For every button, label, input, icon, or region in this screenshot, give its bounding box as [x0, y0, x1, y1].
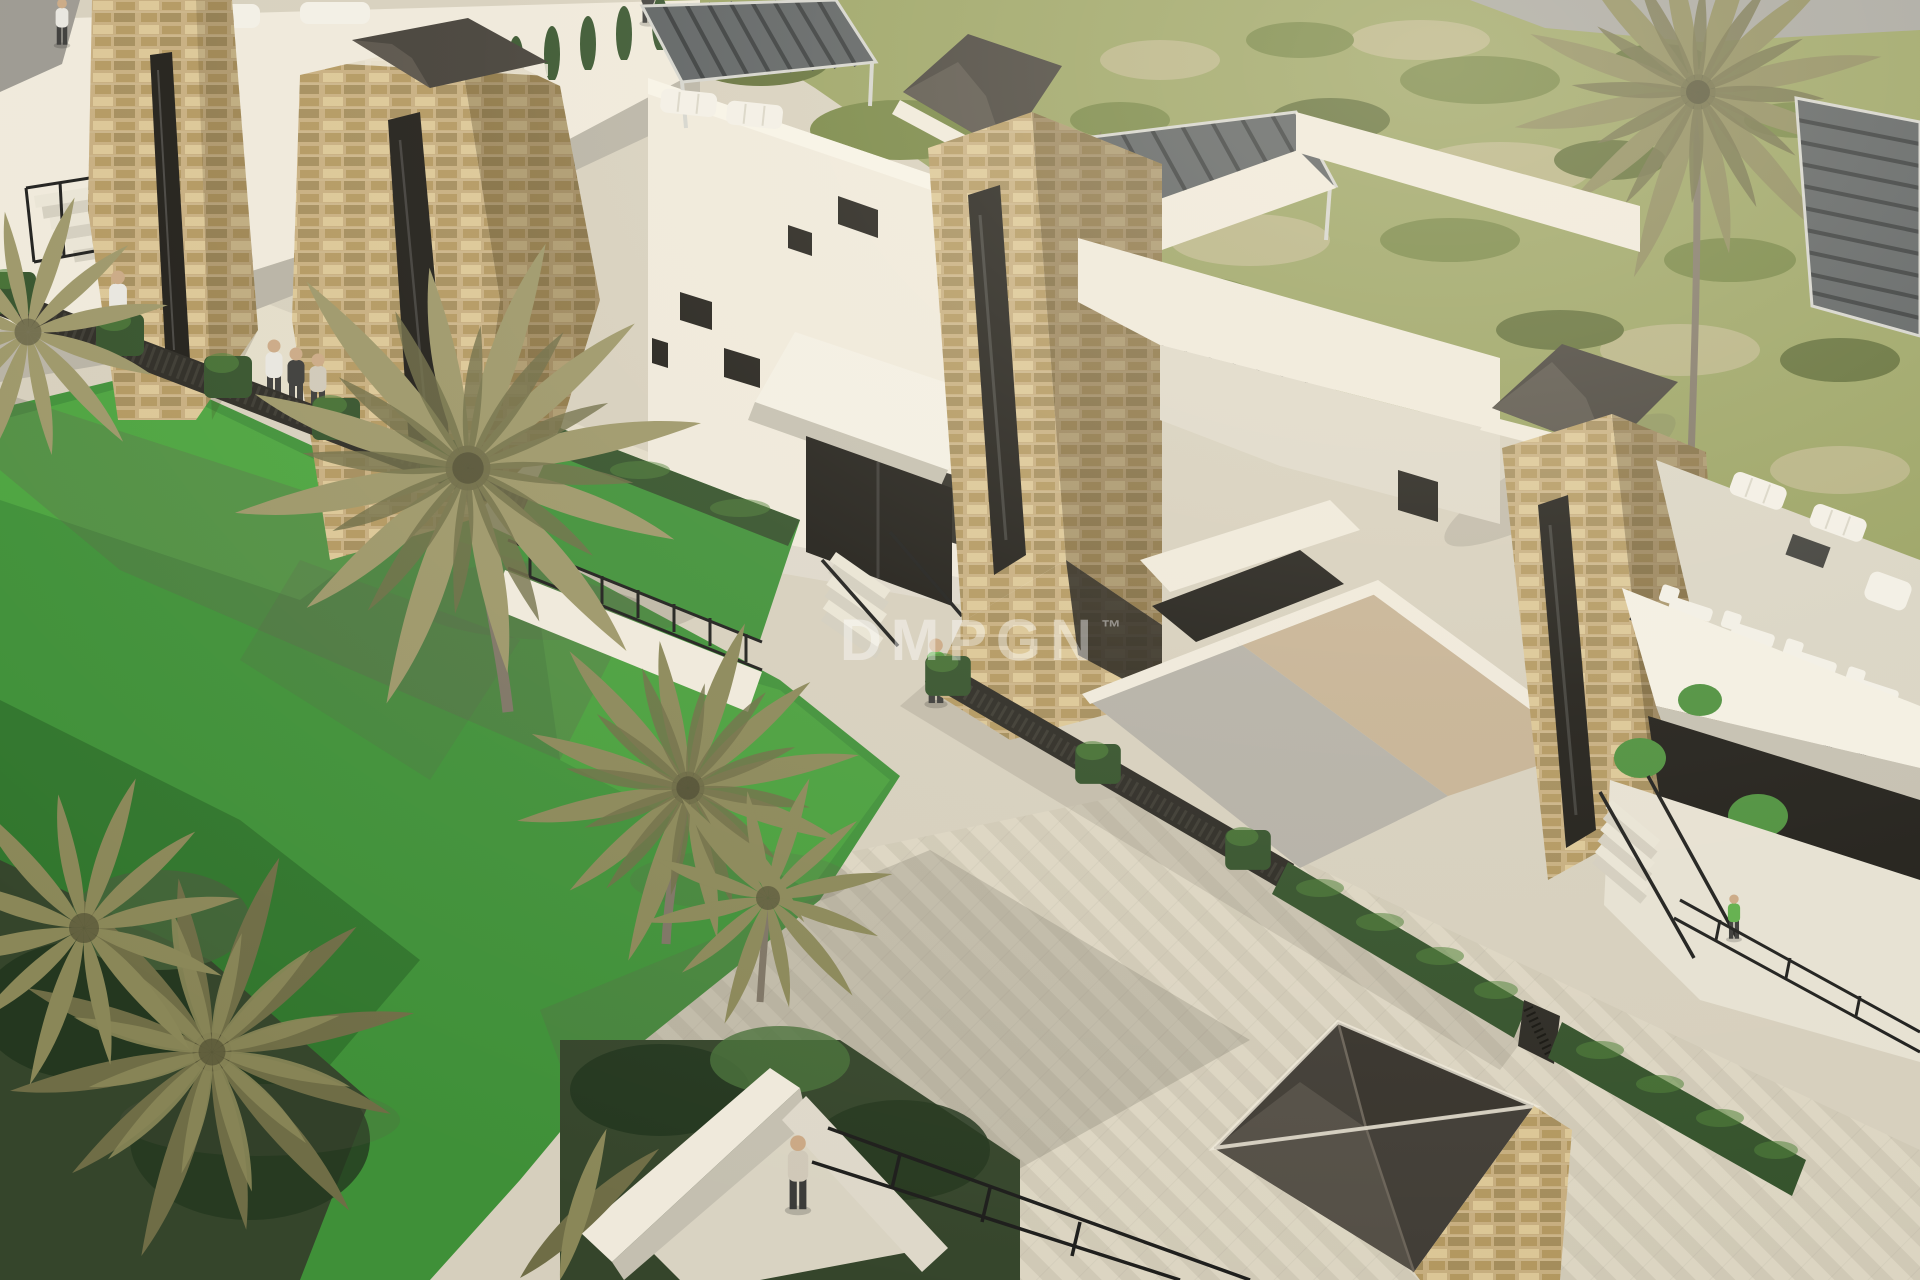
render-image: DMPGN™: [0, 0, 1920, 1280]
architectural-render: DMPGN™: [0, 0, 1920, 1280]
watermark: DMPGN™: [840, 608, 1130, 673]
